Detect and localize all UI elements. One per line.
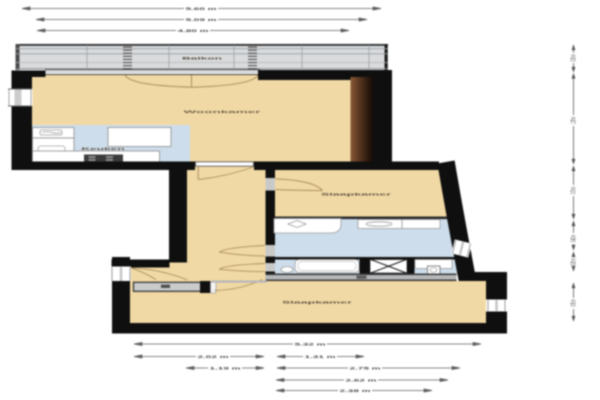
svg-text:2.02 m: 2.02 m: [197, 354, 228, 359]
svg-text:0.39 m: 0.39 m: [570, 54, 578, 61]
svg-text:5.60 m: 5.60 m: [185, 6, 216, 11]
svg-text:Balkon: Balkon: [182, 56, 222, 60]
svg-text:1.31 m: 1.31 m: [304, 354, 335, 359]
svg-text:5.09 m: 5.09 m: [185, 17, 216, 22]
svg-text:0.26 m: 0.26 m: [570, 258, 578, 265]
svg-text:Slaapkamer: Slaapkamer: [321, 192, 392, 196]
svg-text:4.80 m: 4.80 m: [177, 28, 208, 33]
svg-text:0.56 m: 0.56 m: [570, 299, 578, 306]
svg-text:0.79 m: 0.79 m: [570, 187, 578, 194]
svg-text:1.38 m: 1.38 m: [570, 117, 578, 124]
svg-text:Slaapkamer: Slaapkamer: [282, 300, 353, 304]
svg-text:0.42 m: 0.42 m: [570, 235, 578, 242]
svg-text:2.38 m: 2.38 m: [339, 388, 370, 393]
svg-text:5.32 m: 5.32 m: [294, 342, 325, 347]
svg-text:2.62 m: 2.62 m: [345, 378, 376, 383]
svg-text:1.19 m: 1.19 m: [209, 366, 240, 371]
svg-text:2.75 m: 2.75 m: [349, 366, 380, 371]
svg-text:Woonkamer: Woonkamer: [184, 110, 261, 114]
svg-text:Keuken: Keuken: [81, 147, 124, 151]
